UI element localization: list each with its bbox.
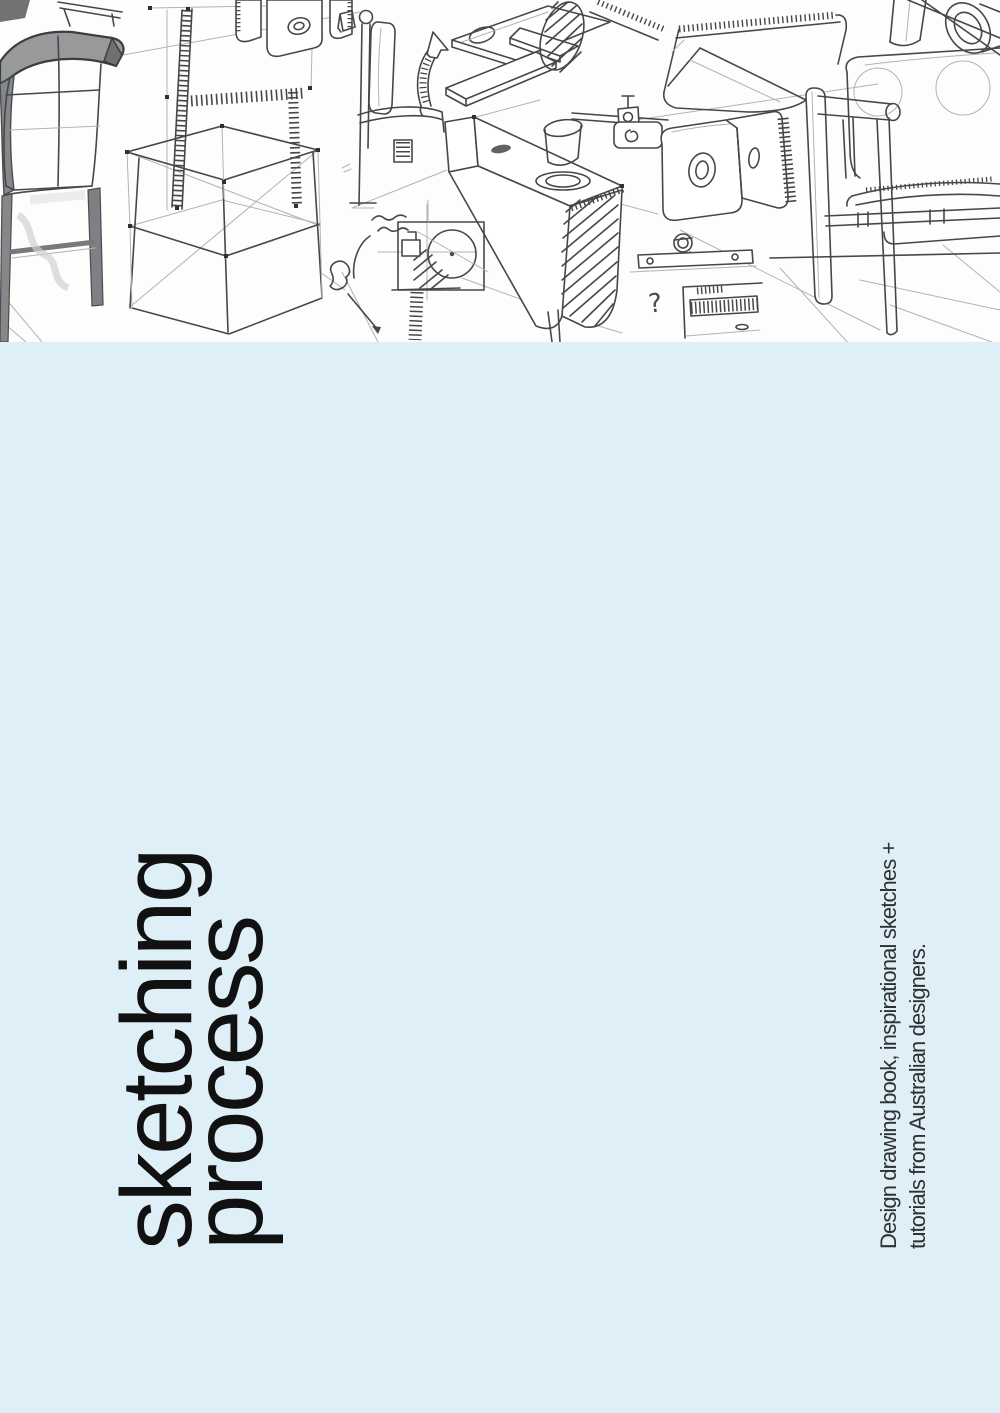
book-title: sketching process	[122, 850, 264, 1250]
cropped-table-sketch	[0, 0, 122, 26]
u-bracket-sketch	[661, 112, 791, 221]
lounge-chair-side-sketch	[338, 11, 444, 209]
panel-and-wedges-sketch	[446, 6, 610, 106]
furniture-sketches-illustration: ?	[0, 0, 1000, 342]
handwritten-note-squiggle	[372, 215, 408, 231]
board-and-fitting-sketch	[572, 96, 668, 148]
corner-section-detail-sketch	[330, 200, 488, 340]
curved-arrow-sketch	[418, 32, 448, 116]
question-mark-annotation: ?	[647, 288, 664, 319]
cover-illustration-band: ?	[0, 0, 1000, 342]
subtitle-line-1: Design drawing book, inspirational sketc…	[874, 843, 903, 1249]
post-sketch	[890, 0, 926, 46]
book-subtitle: Design drawing book, inspirational sketc…	[874, 843, 932, 1249]
hardware-details-sketch: ?	[630, 234, 762, 338]
slab-block-sketch	[445, 115, 624, 342]
tubular-armchair-sketch	[770, 48, 1000, 335]
saddle-bracket-sketch	[236, 0, 352, 56]
subtitle-line-2: tutorials from Australian designers.	[903, 843, 932, 1249]
dark-chair-sketch	[0, 32, 124, 342]
book-cover: ?	[0, 0, 1000, 1413]
